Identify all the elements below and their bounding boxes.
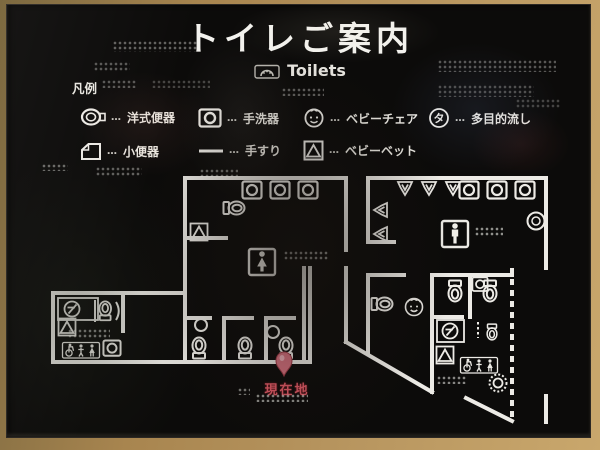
braille-dots [68, 329, 110, 338]
braille-dots [438, 85, 534, 97]
braille-dots [42, 164, 68, 171]
toilet-icon [224, 202, 245, 215]
wash-basin-icon [103, 340, 120, 355]
wash-basin-icon [516, 182, 535, 199]
baby-bed-icon [191, 224, 208, 241]
wash-basin-icon [271, 182, 290, 199]
braille-dots [152, 80, 210, 88]
braille-dots [238, 388, 250, 395]
wash-basin-icon [494, 379, 503, 388]
baby-bed-icon [437, 347, 454, 364]
womens-toilet-area [191, 182, 318, 359]
toilet-icon [372, 298, 393, 311]
accessible-toilet-left [58, 298, 121, 358]
accessible-sign-icon [461, 358, 498, 374]
fixture-icon [267, 326, 279, 338]
braille-dots [96, 167, 142, 176]
you-are-here-marker [276, 352, 292, 376]
accessible-sign-icon [63, 343, 100, 359]
multi-purpose-sink-icon [443, 324, 458, 339]
multi-purpose-sink-icon [65, 302, 80, 317]
braille-dots [284, 251, 328, 261]
braille-dots [256, 394, 308, 402]
braille-dots [102, 80, 136, 88]
wash-basin-icon [490, 375, 507, 392]
braille-dots [437, 376, 467, 384]
pin-highlight [280, 355, 285, 361]
toilet-icon [239, 338, 252, 359]
toilet-icon [99, 301, 111, 320]
woman-pictogram-icon [257, 251, 267, 271]
urinal-icon [422, 182, 436, 195]
photo-frame: トイレご案内 Toilets 凡例 … 洋式便器 … 手洗器 [0, 0, 600, 450]
toilet-icon [449, 281, 462, 302]
wash-basin-icon [243, 182, 262, 199]
urinal-icon [398, 182, 412, 195]
man-pictogram-icon [452, 223, 458, 243]
wash-basin-icon [299, 182, 318, 199]
fixture-icon [528, 213, 545, 230]
toilet-icon [193, 338, 206, 359]
location-pin-icon [276, 352, 292, 376]
wash-basin-icon [488, 182, 507, 199]
braille-dots [282, 88, 324, 96]
toilet-icon [487, 324, 497, 340]
braille-dots [113, 41, 197, 52]
urinal-icon [446, 182, 460, 195]
urinal-icon [374, 227, 387, 241]
braille-dots [475, 227, 503, 236]
braille-dots [516, 99, 560, 108]
braille-dots [200, 169, 238, 177]
fixture-icon [195, 319, 207, 331]
braille-dots [438, 60, 556, 72]
fixture-icon [532, 217, 540, 225]
urinal-icon [374, 203, 387, 217]
wash-basin-icon [460, 182, 479, 199]
baby-chair-icon [406, 299, 423, 316]
braille-dots [94, 62, 130, 71]
